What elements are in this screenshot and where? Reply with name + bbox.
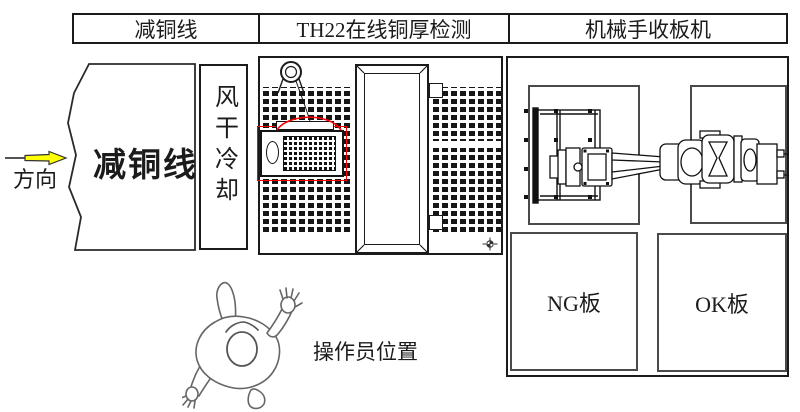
conveyor-board-gap [433,141,501,148]
copper-line-label: 减铜线 [93,138,198,186]
ok-bin-box: OK板 [657,233,787,372]
factory-layout-diagram: 减铜线 TH22在线铜厚检测 机械手收板机 方向 减铜线 风干冷却 [0,0,800,412]
direction-label: 方向 [13,162,57,194]
robot-base-box [690,85,787,224]
ng-bin-box: NG板 [510,232,638,371]
detector-top-shelf [276,121,334,130]
air-dry-cooling-label: 风干冷却 [212,84,236,248]
pallet-station-box [528,85,640,225]
header-robot-unloader: 机械手收板机 [508,15,786,42]
ok-bin-label: OK板 [695,287,749,319]
conveyor-rollers-right [433,87,501,232]
section-header-bar: 减铜线 TH22在线铜厚检测 机械手收板机 [72,13,788,44]
detector-sensor-grid [283,136,336,171]
gantry-frame [355,64,429,254]
gantry-notch-top [429,83,443,98]
gantry-notch-bottom [429,215,443,230]
ng-bin-label: NG板 [547,286,601,318]
header-copper-line: 减铜线 [74,15,258,42]
air-dry-cooling-box: 风干冷却 [199,64,248,250]
gantry-frame-inner [364,73,420,245]
detector-lens-oval [266,141,279,164]
operator-figure [182,276,307,412]
header-th22-detection: TH22在线铜厚检测 [258,15,508,42]
operator-position-label: 操作员位置 [313,336,418,366]
